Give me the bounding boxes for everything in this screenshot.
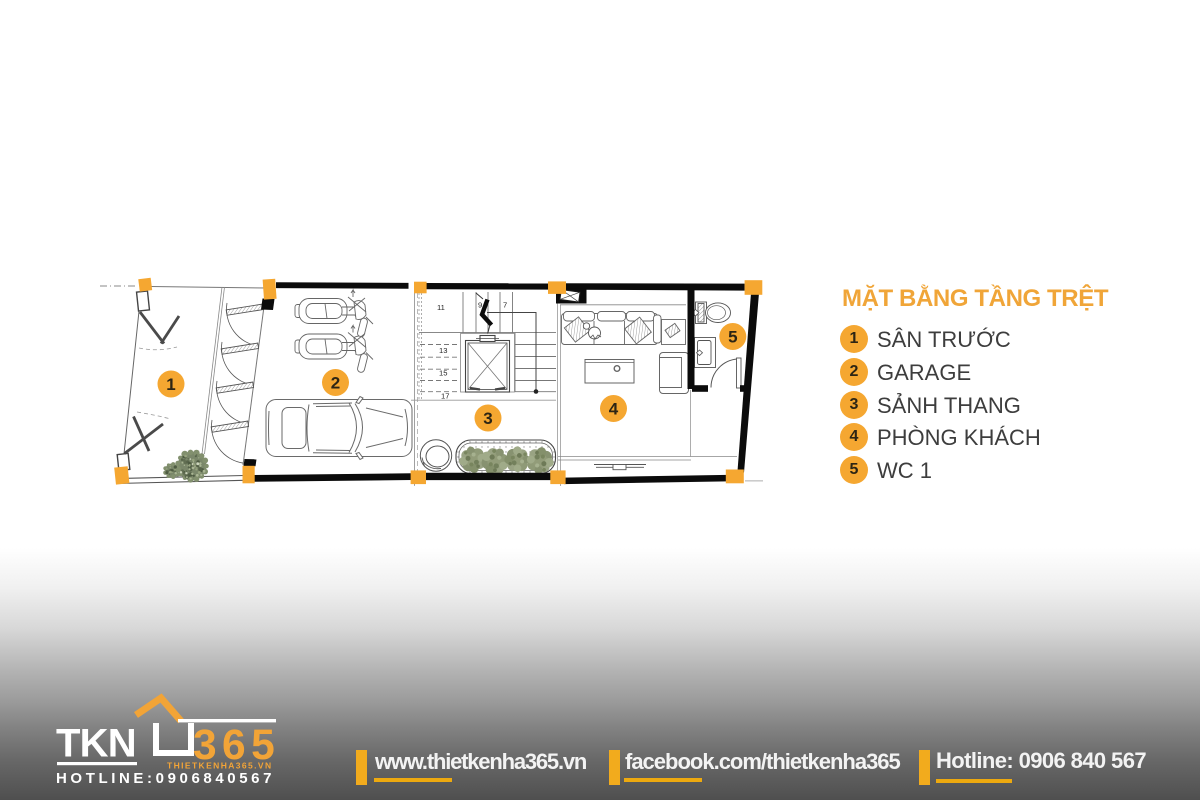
svg-text:11: 11 <box>437 303 445 312</box>
svg-text:9: 9 <box>478 301 482 310</box>
svg-text:2: 2 <box>331 374 340 393</box>
svg-text:17: 17 <box>441 392 449 401</box>
svg-text:HOTLINE:0906840567: HOTLINE:0906840567 <box>56 770 275 787</box>
svg-text:13: 13 <box>439 346 447 355</box>
svg-text:4: 4 <box>609 400 619 419</box>
svg-text:THIETKENHA365.VN: THIETKENHA365.VN <box>167 761 273 771</box>
svg-text:5: 5 <box>728 328 737 347</box>
svg-text:15: 15 <box>439 369 447 378</box>
svg-text:7: 7 <box>503 301 507 310</box>
svg-text:3: 3 <box>483 409 492 428</box>
svg-text:TKN: TKN <box>56 722 136 766</box>
svg-text:1: 1 <box>166 375 175 394</box>
